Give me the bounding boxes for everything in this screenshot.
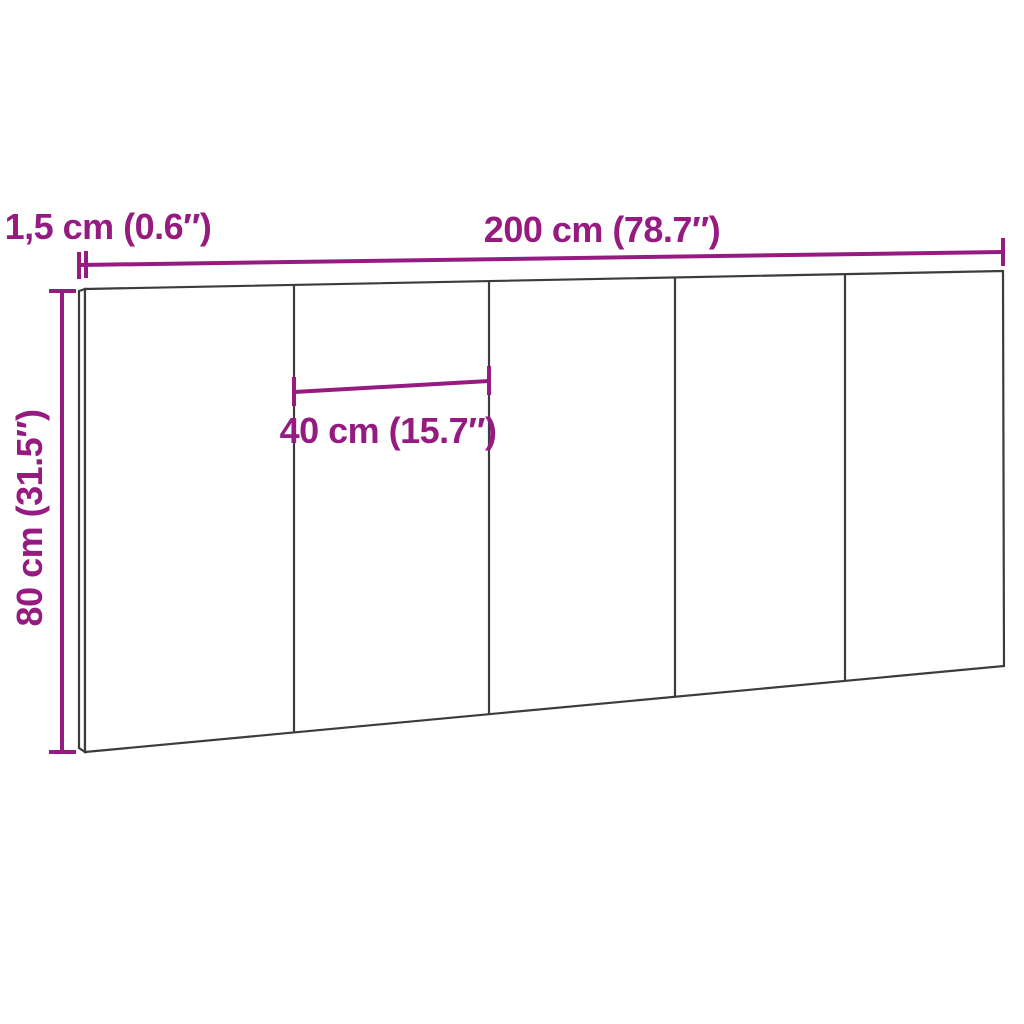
height-dimension-label: 80 cm (31.5″)	[9, 410, 50, 627]
diagram-canvas: 200 cm (78.7″) 1,5 cm (0.6″) 80 cm (31.5…	[0, 0, 1024, 1024]
panel-width-dimension-label: 40 cm (15.7″)	[280, 410, 497, 451]
dimension-diagram: 200 cm (78.7″) 1,5 cm (0.6″) 80 cm (31.5…	[0, 0, 1024, 1024]
width-dimension-line	[79, 252, 1003, 265]
headboard	[79, 271, 1004, 752]
thickness-dimension-label: 1,5 cm (0.6″)	[5, 206, 212, 247]
thickness-dimension: 1,5 cm (0.6″)	[5, 206, 212, 279]
height-dimension: 80 cm (31.5″)	[9, 291, 76, 752]
width-dimension: 200 cm (78.7″)	[79, 209, 1003, 266]
width-dimension-label: 200 cm (78.7″)	[484, 209, 720, 250]
headboard-front-panel	[85, 271, 1004, 752]
